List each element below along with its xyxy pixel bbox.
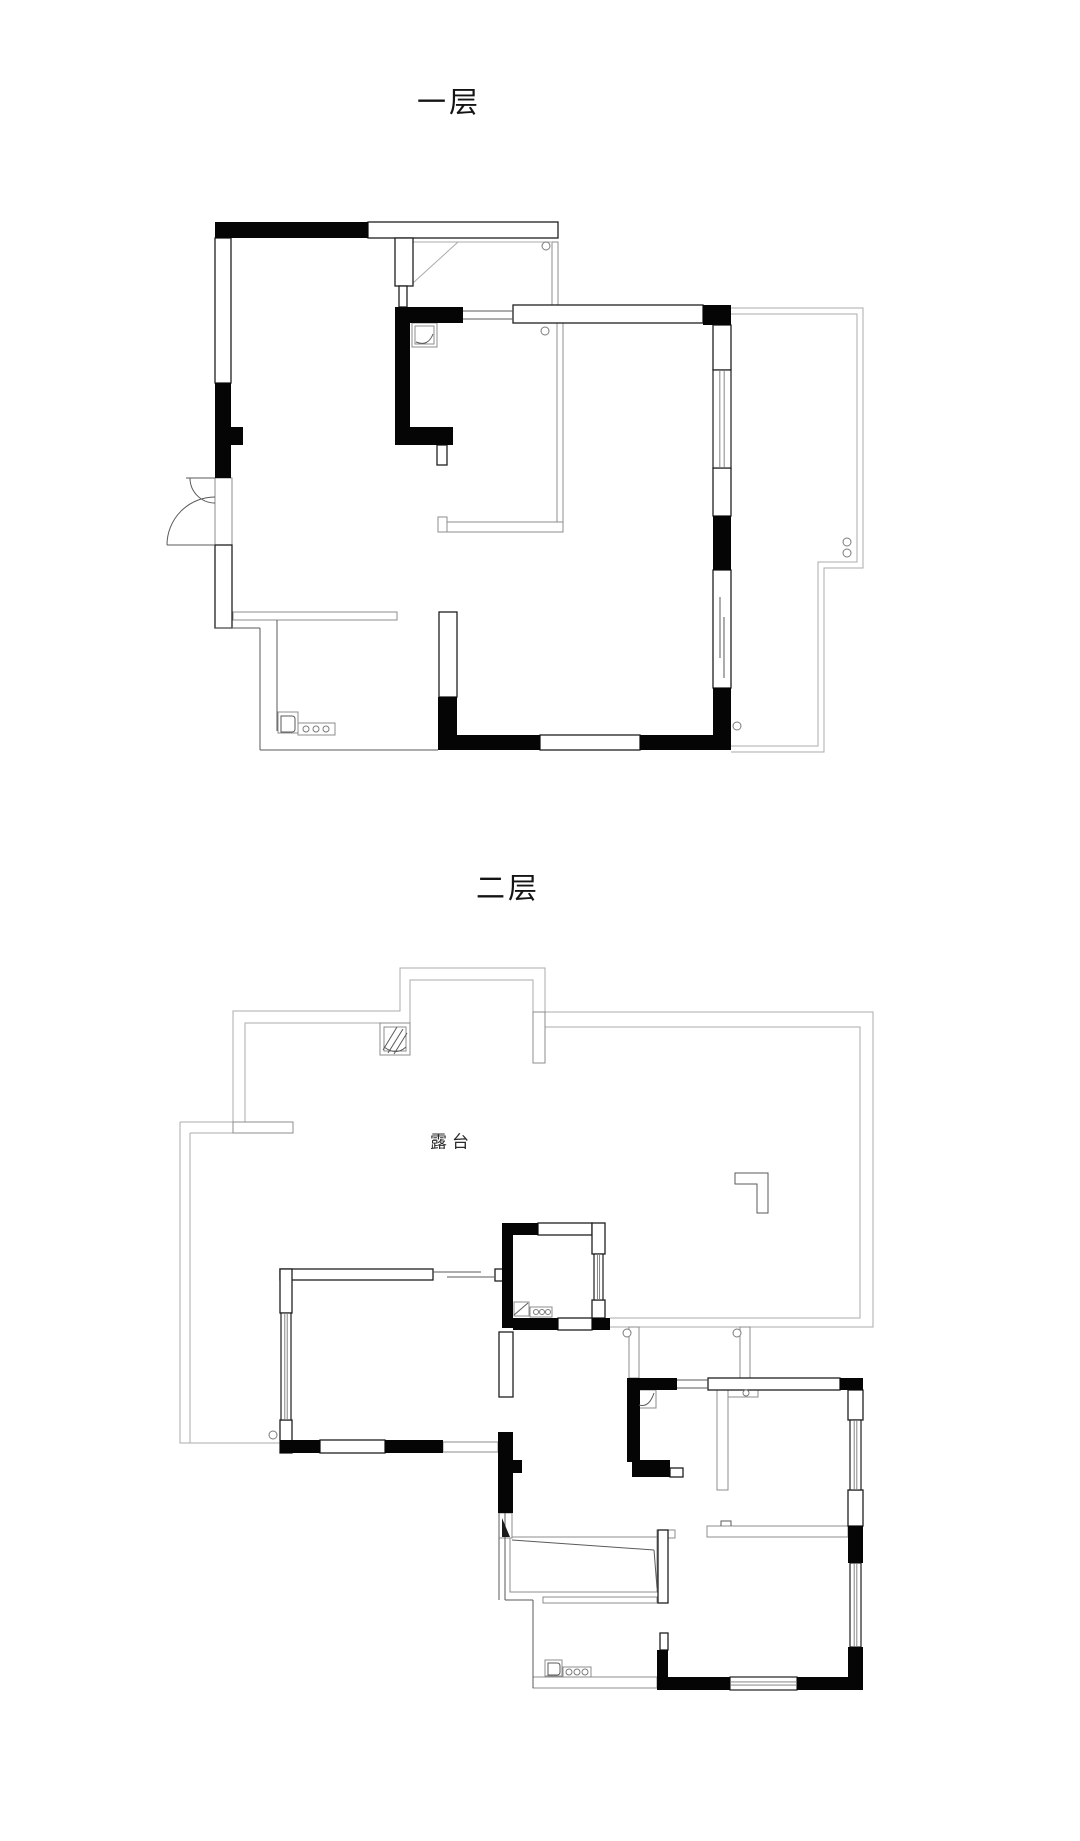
bath-mid-stub [670, 1468, 683, 1477]
bedroom-window [281, 1313, 291, 1420]
l-wall-vertical [395, 307, 410, 445]
left-wall-notch [230, 427, 243, 445]
stove-burner [566, 1669, 572, 1675]
right-wall-window [713, 370, 731, 468]
bedroom-top-wall [280, 1269, 433, 1280]
stair-left-black [498, 1432, 513, 1513]
marker-circle [733, 1329, 741, 1337]
top-wall-black [215, 222, 368, 238]
mid-bath-foot-black [632, 1460, 670, 1477]
terrace-corner-mark [735, 1173, 768, 1213]
bedroom-door-sill [443, 1442, 498, 1452]
stove-burner [323, 726, 329, 732]
bath-top-black [502, 1223, 538, 1235]
thin-partition-wall [717, 1390, 728, 1490]
lower-room-bottom-wall [533, 1677, 657, 1688]
bath-left-black [502, 1223, 513, 1328]
bath-bottom-mid [558, 1318, 592, 1330]
floor1-plan [167, 222, 863, 752]
top-right-corner-black [703, 305, 731, 325]
marker-circle [541, 327, 549, 335]
mid-wall [513, 305, 703, 323]
marker-circle [542, 242, 550, 250]
right-wall-black1 [713, 516, 731, 570]
east-window-lower [850, 1563, 861, 1647]
terrace-low-wall [233, 1122, 293, 1133]
east-wall-black1 [848, 1526, 863, 1563]
drain-circle [843, 538, 851, 546]
stair-left-wall-white [499, 1332, 513, 1397]
floor1-title: 一层 [417, 79, 481, 121]
stair-right-wall [658, 1530, 668, 1603]
stair-wall-upper [395, 238, 413, 286]
corner-diagonal-line [413, 242, 458, 283]
interior-partition-horizontal [447, 522, 563, 532]
right-wall-door-host [713, 570, 731, 688]
east-wall-seg2 [848, 1490, 863, 1526]
dining-pier [439, 612, 457, 697]
mid-bath-left-black [627, 1378, 640, 1462]
drain-circle [733, 722, 741, 730]
floorplan-drawing [0, 0, 1080, 1841]
pier-stub [437, 445, 447, 465]
south-window [730, 1677, 797, 1690]
stair-left-nub [513, 1460, 522, 1473]
south-corner-black [657, 1650, 668, 1690]
right-wall-seg2 [713, 468, 731, 516]
bedroom-bottom-black2 [385, 1440, 443, 1453]
balcony-outline-inner [731, 314, 857, 746]
bottom-wall-stub [660, 1633, 668, 1650]
left-wall-lower [215, 545, 232, 628]
bath-window [594, 1254, 603, 1300]
terrace-label: 露台 [430, 1128, 474, 1153]
marker-circle [623, 1329, 631, 1337]
bottom-wall-black2 [640, 735, 731, 750]
interior-partition-vertical [557, 323, 563, 522]
entry-door-opening [215, 478, 232, 545]
terrace-bay-stub [533, 1012, 545, 1063]
balcony-outline-outer [731, 308, 863, 752]
bottom-wall-opening [540, 735, 640, 750]
drain-circle [843, 549, 851, 557]
drain-circle [269, 1431, 277, 1439]
bath-bottom-black2 [592, 1318, 610, 1330]
floorplan-page: 一层 二层 露台 [0, 0, 1080, 1841]
stove-burner [582, 1669, 588, 1675]
terrace-outline-left [180, 1122, 280, 1443]
entry-door-arc-small [190, 478, 215, 503]
left-wall-upper [215, 238, 231, 383]
hall-partition-wall [552, 242, 558, 307]
bedroom-left-corner [280, 1269, 292, 1313]
floor2-plan [180, 968, 873, 1690]
bath-right-lower [592, 1300, 605, 1318]
bath-bottom-black1 [513, 1318, 558, 1330]
bath-right-upper [592, 1223, 605, 1254]
long-wall-white [708, 1378, 840, 1390]
bedroom-bottom-mid [320, 1440, 385, 1453]
parapet-connector [740, 1327, 750, 1378]
south-wall-black1 [668, 1677, 730, 1690]
partition-step [438, 517, 447, 532]
stove-burner [303, 726, 309, 732]
south-wall-black2 [797, 1677, 857, 1690]
east-wall-seg1 [848, 1390, 863, 1420]
top-wall-right [368, 222, 558, 238]
stove-burner [540, 1310, 545, 1315]
fixture-circle [743, 1390, 749, 1396]
room-divider-wall [707, 1526, 848, 1537]
stove-burner [574, 1669, 580, 1675]
l-wall-foot [397, 427, 453, 445]
stove-burner [546, 1310, 551, 1315]
door-cap [495, 1269, 503, 1281]
right-wall-seg1 [713, 325, 731, 370]
l-wall-top [395, 307, 463, 323]
lower-room-top-wall [543, 1597, 657, 1603]
wall-notch [721, 1521, 731, 1526]
left-wall-black [215, 383, 231, 478]
flue-shaft-inner [415, 326, 434, 344]
stair-wall-narrow [399, 286, 407, 307]
floor2-title: 二层 [476, 865, 540, 907]
long-wall-black-right [840, 1378, 863, 1390]
kitchen-wall [233, 612, 397, 620]
bottom-wall-black1 [438, 735, 540, 750]
entry-door-arc [167, 497, 215, 545]
bath-top-wall [538, 1223, 592, 1235]
stove-burner [313, 726, 319, 732]
east-window-upper [850, 1420, 861, 1490]
bedroom-bottom-black1 [280, 1440, 320, 1453]
stove-burner [534, 1310, 539, 1315]
terrace-outline-inner [190, 980, 860, 1318]
